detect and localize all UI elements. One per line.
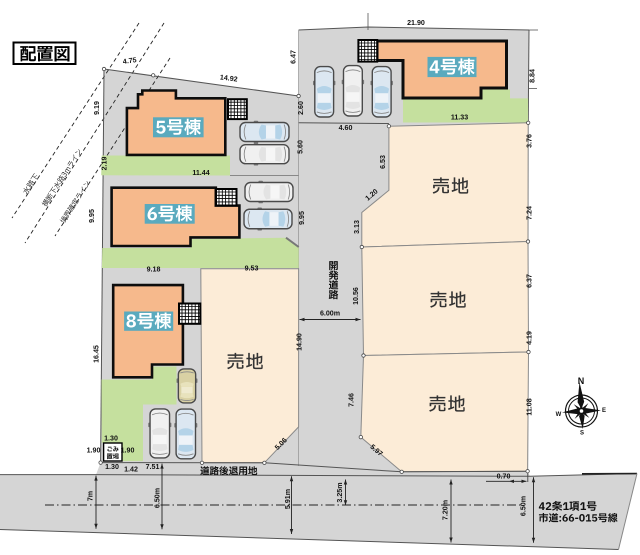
svg-text:1.30: 1.30 xyxy=(104,435,118,443)
svg-text:1.30: 1.30 xyxy=(105,463,119,471)
svg-text:9.18: 9.18 xyxy=(147,266,161,274)
svg-text:6.47: 6.47 xyxy=(290,50,298,64)
svg-text:6.00m: 6.00m xyxy=(320,310,340,318)
svg-text:11.08: 11.08 xyxy=(526,398,534,415)
svg-text:3.25m: 3.25m xyxy=(336,482,344,502)
svg-text:10.56: 10.56 xyxy=(352,287,360,305)
svg-text:11.44: 11.44 xyxy=(192,169,209,177)
svg-text:4.60: 4.60 xyxy=(339,124,353,132)
svg-text:21.90: 21.90 xyxy=(407,19,425,27)
svg-text:S: S xyxy=(580,431,584,437)
svg-text:9.19: 9.19 xyxy=(93,101,101,115)
svg-text:4.19: 4.19 xyxy=(526,331,534,345)
svg-text:14.90: 14.90 xyxy=(296,333,304,351)
svg-text:7.20m: 7.20m xyxy=(442,500,450,520)
svg-text:3.76: 3.76 xyxy=(526,134,534,148)
svg-text:9.95: 9.95 xyxy=(88,209,96,223)
svg-text:8.84: 8.84 xyxy=(529,69,537,83)
svg-text:5.60: 5.60 xyxy=(297,140,305,154)
svg-text:11.33: 11.33 xyxy=(451,114,468,122)
svg-text:9.95: 9.95 xyxy=(298,211,306,225)
svg-text:16.45: 16.45 xyxy=(93,345,101,363)
svg-text:E: E xyxy=(602,408,606,414)
svg-text:2.19: 2.19 xyxy=(101,157,109,171)
svg-text:5.91m: 5.91m xyxy=(284,489,292,509)
svg-text:W: W xyxy=(556,412,562,418)
svg-text:2.60: 2.60 xyxy=(297,101,305,115)
svg-text:7.51: 7.51 xyxy=(146,463,160,471)
svg-text:0.70: 0.70 xyxy=(497,472,511,480)
svg-text:N: N xyxy=(578,376,585,386)
svg-text:7.24: 7.24 xyxy=(526,206,534,220)
svg-text:1.90: 1.90 xyxy=(87,447,101,455)
svg-text:6.37: 6.37 xyxy=(526,274,534,288)
svg-text:1.90: 1.90 xyxy=(121,447,135,455)
svg-text:7.46: 7.46 xyxy=(348,393,356,407)
svg-text:1.42: 1.42 xyxy=(124,466,138,474)
svg-text:9.53: 9.53 xyxy=(245,265,259,273)
svg-text:3.13: 3.13 xyxy=(353,220,361,234)
svg-text:7m: 7m xyxy=(87,491,95,501)
svg-text:6.53: 6.53 xyxy=(379,155,387,169)
svg-text:6.50m: 6.50m xyxy=(520,496,528,516)
